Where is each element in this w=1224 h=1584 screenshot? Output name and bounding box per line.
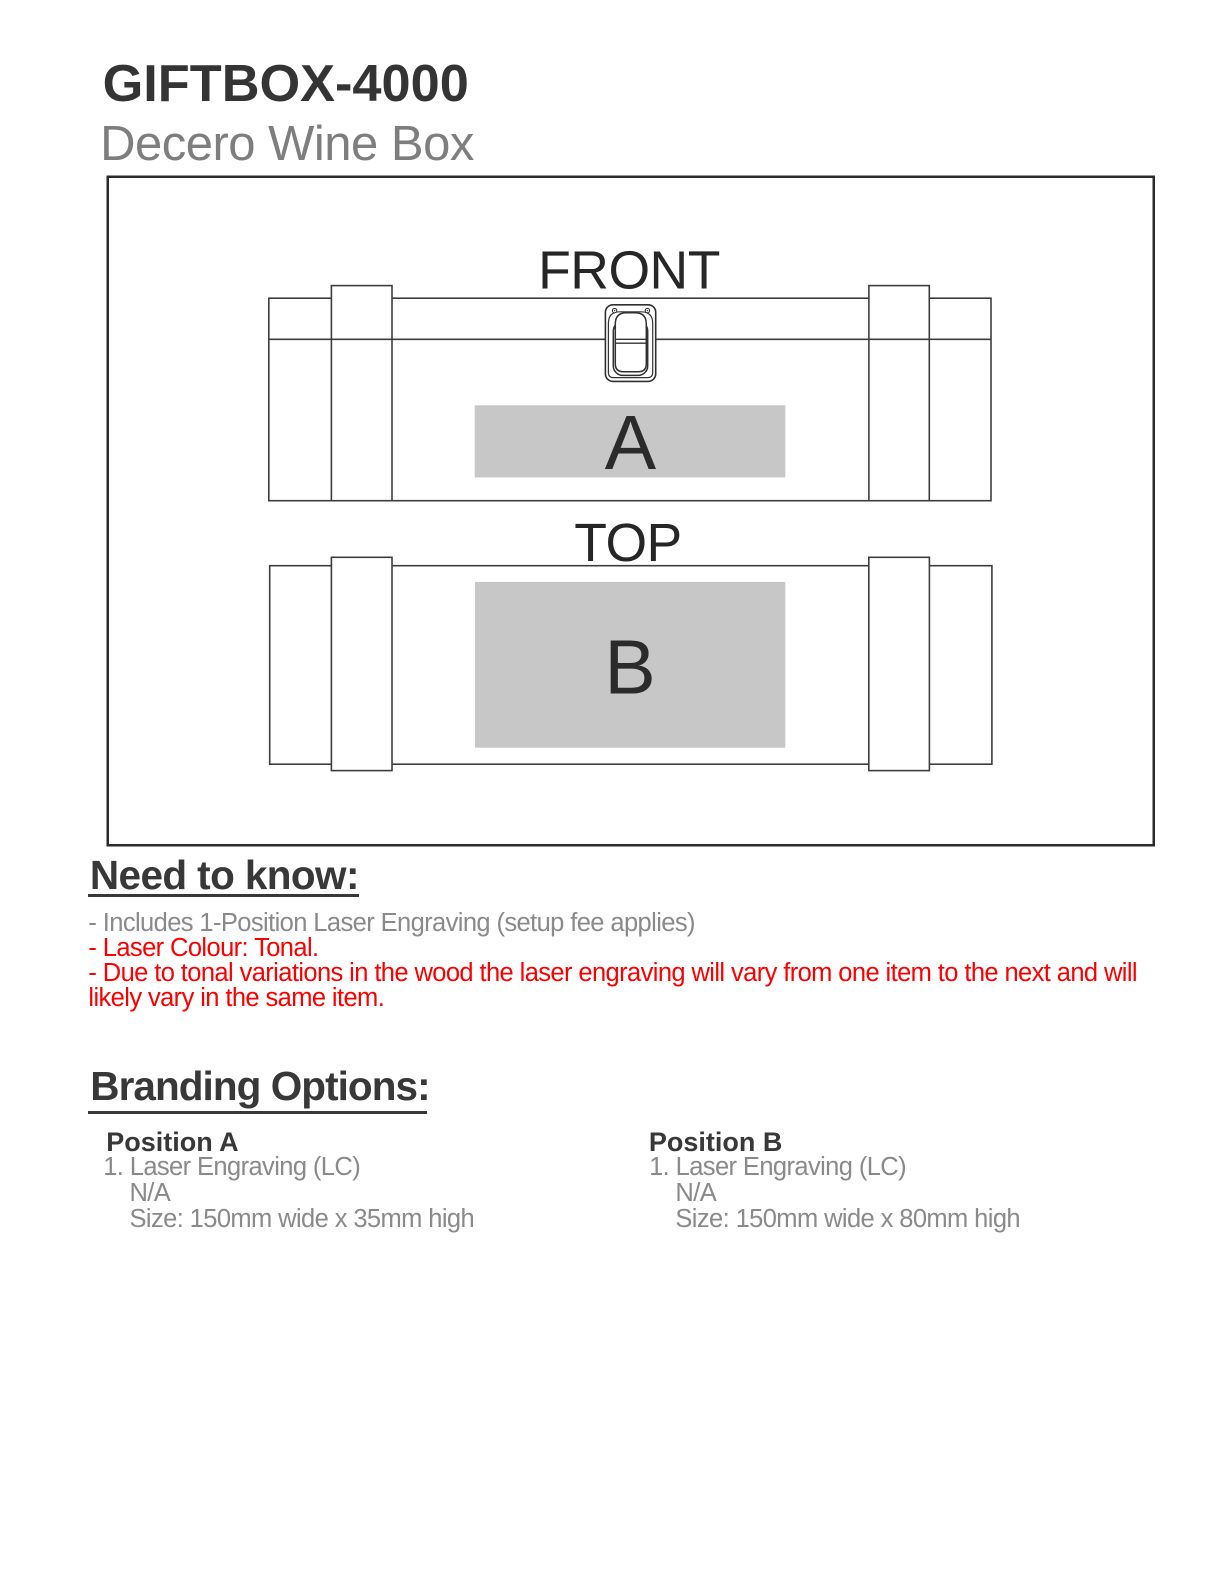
svg-text:B: B	[604, 624, 655, 710]
svg-text:FRONT: FRONT	[538, 242, 720, 301]
svg-text:A: A	[605, 400, 657, 486]
svg-text:TOP: TOP	[574, 514, 682, 573]
